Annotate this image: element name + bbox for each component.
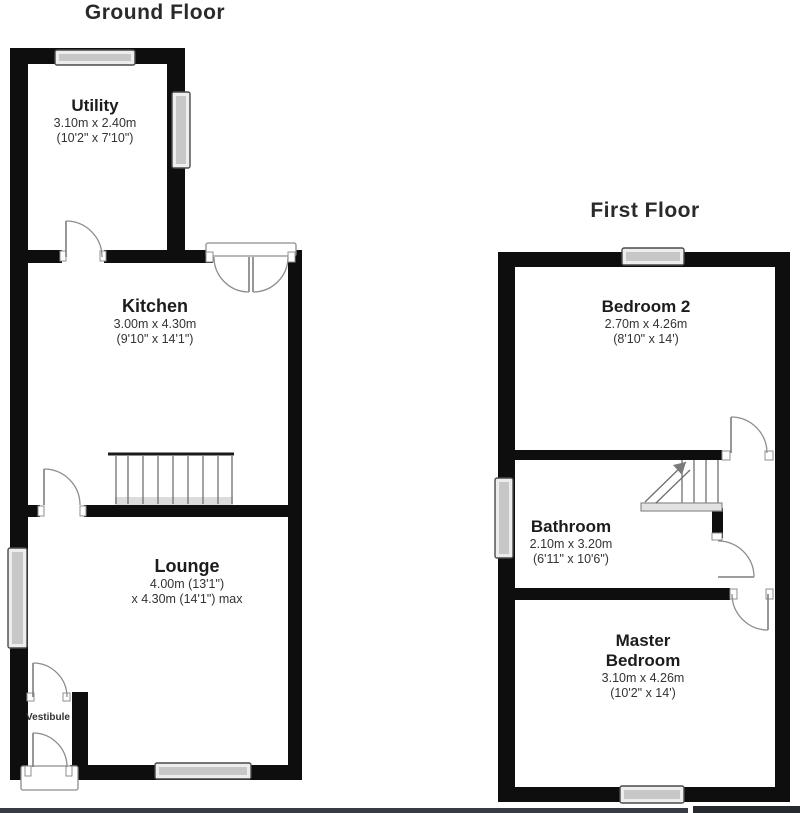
room-dims-imperial: (10'2" x 14'): [573, 686, 713, 701]
bathroom-room-label: Bathroom 2.10m x 3.20m (6'11" x 10'6"): [501, 517, 641, 567]
door-jamb: [80, 506, 86, 516]
ground-floor-plan: [8, 48, 302, 790]
room-dims-line1: 4.00m (13'1"): [117, 577, 257, 592]
french-doors: [206, 243, 296, 292]
door-jamb: [38, 506, 44, 516]
wall: [775, 252, 790, 802]
bathroom-door: [712, 533, 754, 577]
master-bedroom-window: [620, 786, 684, 803]
room-dims-imperial: (10'2" x 7'10"): [25, 131, 165, 146]
room-dims-imperial: (8'10" x 14'): [576, 332, 716, 347]
door-jamb: [766, 589, 773, 599]
bedroom2-room-label: Bedroom 2 2.70m x 4.26m (8'10" x 14'): [576, 297, 716, 347]
door-jamb: [765, 451, 773, 460]
master-bedroom-room-label: Master Bedroom 3.10m x 4.26m (10'2" x 14…: [573, 631, 713, 701]
door-swing-arc: [214, 257, 249, 292]
room-dims-imperial: (9'10" x 14'1"): [85, 332, 225, 347]
room-dims-imperial: (6'11" x 10'6"): [501, 552, 641, 567]
wall: [104, 250, 213, 263]
ground-floor-title: Ground Floor: [75, 1, 235, 25]
first-floor-stairs: [641, 460, 722, 511]
room-dims-metric: 2.70m x 4.26m: [576, 317, 716, 332]
vestibule-label: Vestibule: [16, 712, 80, 724]
door-jamb: [25, 766, 31, 776]
room-name-line2: Bedroom: [573, 651, 713, 671]
stair-bottom-edge: [641, 503, 722, 511]
french-door-frame: [206, 243, 296, 256]
room-name-line1: Master: [573, 631, 713, 651]
front-door: [21, 733, 78, 790]
room-name: Utility: [25, 96, 165, 116]
room-dims-metric: 2.10m x 3.20m: [501, 537, 641, 552]
utility-right-window: [172, 92, 190, 168]
door-jamb: [206, 252, 213, 262]
room-dims-line2: x 4.30m (14'1") max: [117, 592, 257, 607]
door-jamb: [712, 533, 722, 540]
wall: [515, 450, 722, 460]
utility-top-window: [55, 50, 135, 65]
door-swing-arc: [44, 469, 80, 505]
screenshot-bottom-edge: [693, 806, 800, 813]
door-swing-arc: [33, 733, 67, 767]
door-jamb: [730, 589, 737, 599]
door-jamb: [60, 251, 66, 261]
room-dims-metric: 3.00m x 4.30m: [85, 317, 225, 332]
door-swing-arc: [253, 257, 288, 292]
door-swing-arc: [66, 221, 102, 257]
first-floor-title: First Floor: [565, 199, 725, 223]
wall: [10, 48, 28, 780]
door-swing-arc: [718, 541, 754, 577]
kitchen-lounge-door: [38, 469, 86, 516]
wall: [72, 692, 88, 768]
door-jamb: [288, 252, 295, 262]
lounge-left-window: [8, 548, 27, 648]
screenshot-bottom-edge: [0, 808, 688, 813]
vestibule-inner-door: [27, 663, 70, 701]
room-name: Lounge: [117, 555, 257, 577]
door-swing-arc: [731, 417, 767, 453]
room-dims-metric: 3.10m x 4.26m: [573, 671, 713, 686]
wall: [515, 588, 730, 600]
door-jamb: [66, 766, 72, 776]
door-jamb: [100, 251, 106, 261]
door-swing-arc: [33, 663, 67, 697]
stair-edge-shading: [115, 497, 233, 505]
bedroom2-door: [722, 417, 773, 460]
master-bedroom-door: [730, 589, 773, 630]
wall: [26, 250, 62, 263]
ground-stairs: [108, 454, 234, 505]
room-dims-metric: 3.10m x 2.40m: [25, 116, 165, 131]
lounge-room-label: Lounge 4.00m (13'1") x 4.30m (14'1") max: [117, 555, 257, 607]
lounge-bottom-window: [155, 763, 251, 779]
door-jamb: [722, 451, 730, 460]
utility-room-label: Utility 3.10m x 2.40m (10'2" x 7'10"): [25, 96, 165, 146]
floor-plan-page: Ground Floor First Floor Utility 3.10m x…: [0, 0, 800, 813]
wall: [84, 505, 302, 517]
room-name: Bedroom 2: [576, 297, 716, 317]
kitchen-room-label: Kitchen 3.00m x 4.30m (9'10" x 14'1"): [85, 295, 225, 347]
utility-door: [60, 221, 106, 261]
room-name: Bathroom: [501, 517, 641, 537]
bedroom2-window: [622, 248, 684, 265]
room-name: Kitchen: [85, 295, 225, 317]
